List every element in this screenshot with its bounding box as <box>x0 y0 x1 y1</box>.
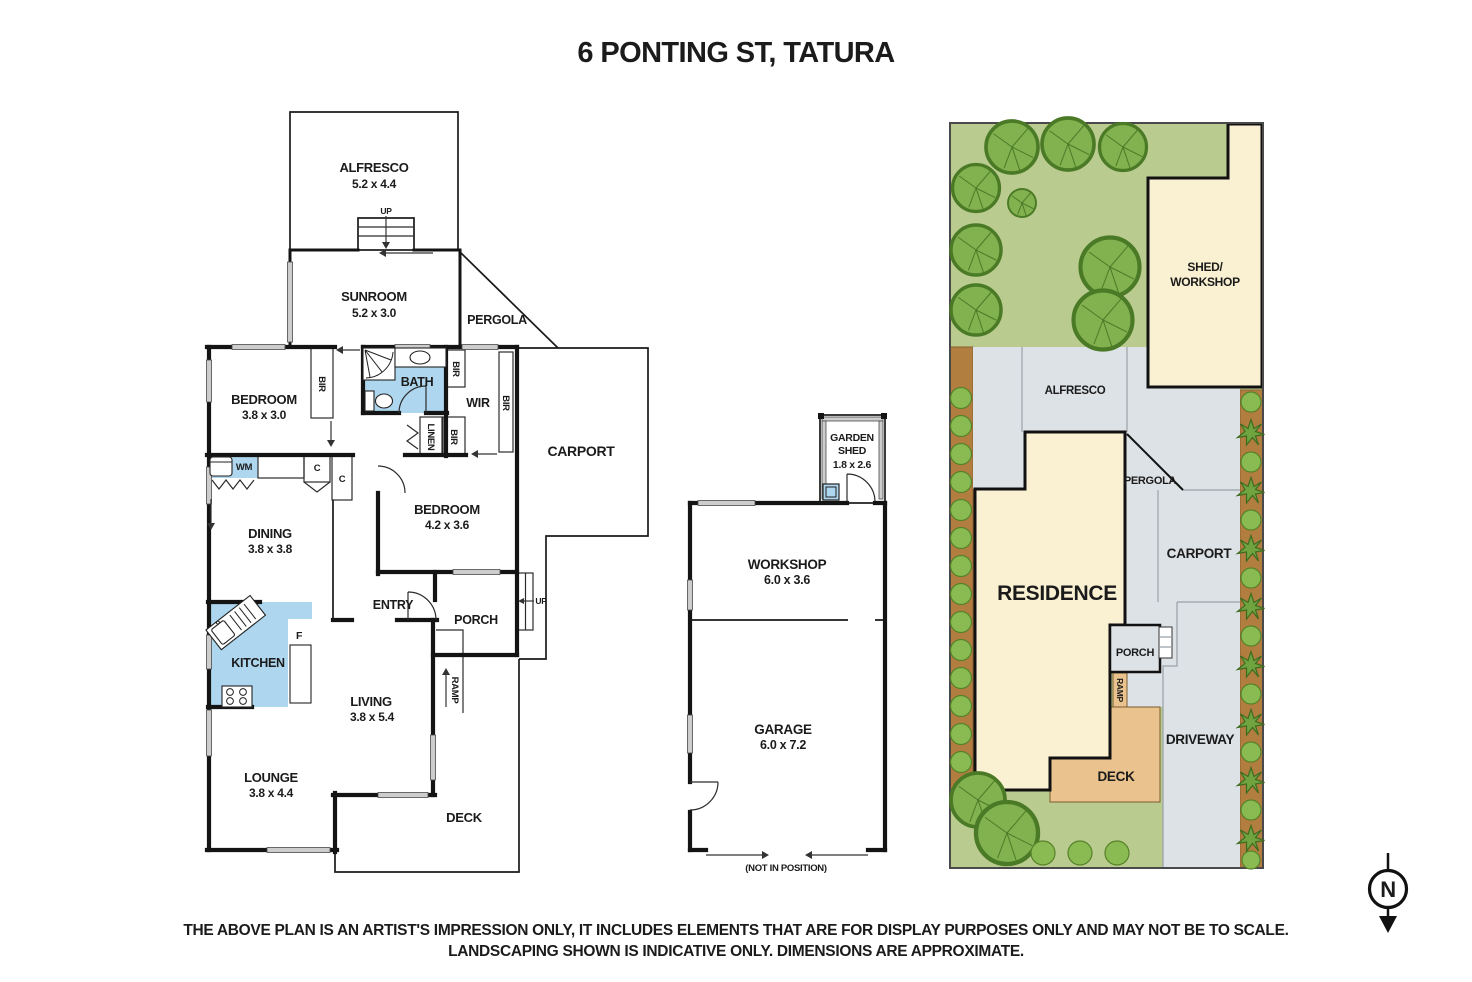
disclaimer: THE ABOVE PLAN IS AN ARTIST'S IMPRESSION… <box>183 922 1288 960</box>
site-shed-label-2: WORKSHOP <box>1170 275 1240 289</box>
floorplan-outbuilding: GARDEN SHED 1.8 x 2.6 WORKSHOP 6.0 x 3.6… <box>688 413 888 874</box>
garage-dims: 6.0 x 7.2 <box>760 738 806 752</box>
carport-label: CARPORT <box>547 443 615 459</box>
outbuilding-labels: GARDEN SHED 1.8 x 2.6 WORKSHOP 6.0 x 3.6… <box>745 432 874 874</box>
compass-icon: N <box>1370 853 1407 933</box>
living-label: LIVING <box>350 694 392 709</box>
floorplan-canvas: 6 PONTING ST, TATURA <box>0 0 1472 982</box>
lounge-dims: 3.8 x 4.4 <box>249 786 294 800</box>
porch-label: PORCH <box>454 613 498 627</box>
dining-dims: 3.8 x 3.8 <box>248 542 293 556</box>
disclaimer-line-2: LANDSCAPING SHOWN IS INDICATIVE ONLY. DI… <box>448 943 1024 960</box>
floorplan-main: ALFRESCO 5.2 x 4.4 UP SUNROOM 5.2 x 3.0 … <box>206 112 648 872</box>
bir4-label: BIR <box>448 429 459 445</box>
cupboard2-label: C <box>339 474 346 485</box>
siteplan: SHED/ WORKSHOP ALFRESCO PERGOLA CARPORT … <box>950 118 1265 869</box>
porch-up-label: UP <box>535 596 547 606</box>
compass-north-label: N <box>1380 877 1396 902</box>
deck-label: DECK <box>446 810 483 825</box>
bir1-label: BIR <box>316 376 327 392</box>
outbuilding-windows <box>688 501 756 754</box>
stairs-up-label: UP <box>380 206 392 216</box>
bir3-label: BIR <box>500 395 511 411</box>
workshop-label: WORKSHOP <box>748 557 827 572</box>
site-ramp-label: RAMP <box>1115 678 1125 702</box>
site-carport-label: CARPORT <box>1167 546 1233 561</box>
garden-shed-label-1: GARDEN <box>830 432 874 444</box>
site-pergola-label: PERGOLA <box>1124 475 1177 487</box>
bedroom1-label: BEDROOM <box>231 392 297 407</box>
pergola-label: PERGOLA <box>467 313 527 327</box>
kitchen-label: KITCHEN <box>231 656 285 670</box>
page-title: 6 PONTING ST, TATURA <box>577 37 895 69</box>
linen-label: LINEN <box>425 423 436 450</box>
site-deck-label: DECK <box>1097 769 1135 784</box>
not-in-position-note: (NOT IN POSITION) <box>745 863 827 874</box>
living-dims: 3.8 x 5.4 <box>350 710 395 724</box>
alfresco-dims: 5.2 x 4.4 <box>352 177 397 191</box>
site-residence-label: RESIDENCE <box>997 582 1117 605</box>
shrubs-bottom-lawn <box>1031 841 1129 865</box>
site-porch-steps <box>1159 627 1172 658</box>
wir-label: WIR <box>466 396 490 410</box>
site-driveway-label: DRIVEWAY <box>1166 732 1235 747</box>
garden-shed-structure <box>818 413 887 503</box>
outbuilding-walls <box>690 503 885 850</box>
site-porch-label: PORCH <box>1116 647 1155 659</box>
dining-label: DINING <box>248 526 292 541</box>
cupboard1-label: C <box>314 463 321 474</box>
laundry-fixtures <box>210 457 232 476</box>
bedroom2-label: BEDROOM <box>414 502 480 517</box>
site-alfresco-label: ALFRESCO <box>1045 385 1106 397</box>
garden-shed-label-2: SHED <box>838 445 867 457</box>
site-shed-label-1: SHED/ <box>1187 260 1223 274</box>
entry-label: ENTRY <box>373 598 414 612</box>
bir2-label: BIR <box>450 361 461 377</box>
floorplan-page: 6 PONTING ST, TATURA <box>0 0 1472 982</box>
ramp-label: RAMP <box>449 677 460 705</box>
sunroom-dims: 5.2 x 3.0 <box>352 306 397 320</box>
workshop-dims: 6.0 x 3.6 <box>764 573 810 587</box>
disclaimer-line-1: THE ABOVE PLAN IS AN ARTIST'S IMPRESSION… <box>183 922 1288 939</box>
sunroom-label: SUNROOM <box>341 289 407 304</box>
bedroom1-dims: 3.8 x 3.0 <box>242 408 287 422</box>
garage-door-arrows <box>706 851 868 859</box>
wm-label: WM <box>236 462 253 473</box>
lounge-label: LOUNGE <box>244 770 298 785</box>
garage-label: GARAGE <box>754 722 812 737</box>
bath-label: BATH <box>401 375 434 389</box>
open-structures <box>290 112 648 872</box>
garden-shed-dims: 1.8 x 2.6 <box>833 459 872 471</box>
alfresco-label: ALFRESCO <box>339 160 408 175</box>
fridge-label: F <box>296 630 303 642</box>
bedroom2-dims: 4.2 x 3.6 <box>425 518 470 532</box>
